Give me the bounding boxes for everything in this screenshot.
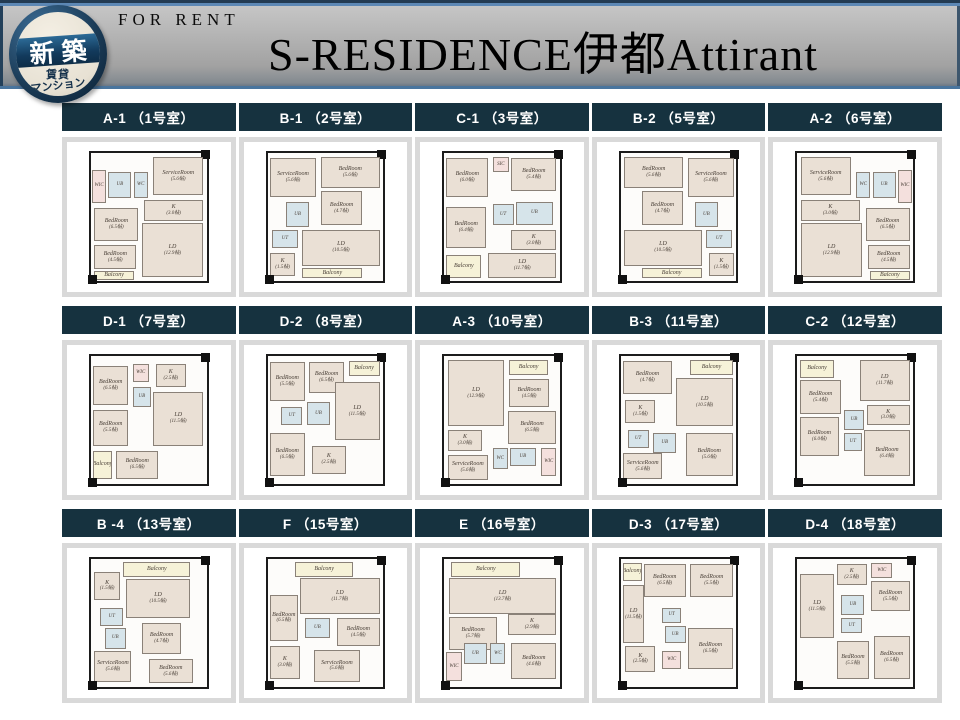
- floorplan-frame: BalconyLD(13.7帖)BedRoom(5.7帖)K(2.9帖)WICU…: [415, 543, 589, 703]
- room-name: WIC: [544, 459, 553, 465]
- room-name: ServiceRoom: [810, 170, 842, 177]
- room-size: (10.5帖): [149, 599, 166, 605]
- room-bedroom: BedRoom(6.5帖): [116, 451, 158, 479]
- room-name: Balcony: [354, 365, 374, 372]
- room-size: (4.7帖): [640, 378, 655, 384]
- room-ub: UB: [105, 628, 126, 648]
- room-name: WIC: [94, 183, 103, 189]
- floorplan-paper: BedRoom(4.7帖)BalconyLD(10.5帖)K(1.5帖)UTUB…: [597, 345, 761, 495]
- room-name: K: [463, 434, 467, 441]
- unit-cell: C-1 （3号室）BedRoom(6.0帖)SICBedRoom(5.4帖)UT…: [415, 103, 589, 297]
- unit-label: D-3 （17号室）: [592, 509, 766, 537]
- room-size: (4.5帖): [522, 394, 537, 400]
- room-bedroom: BedRoom(6.5帖): [866, 208, 910, 241]
- room-size: (6.4帖): [880, 454, 895, 460]
- floorplan-canvas: K(2.5帖)WICLD(11.5帖)BedRoom(5.5帖)UBUTBedR…: [795, 557, 915, 689]
- room-name: K: [169, 369, 173, 376]
- room-ld: LD(10.5帖): [126, 579, 191, 617]
- room-ut: UT: [281, 407, 302, 425]
- room-name: BedRoom: [877, 251, 900, 258]
- room-name: Balcony: [147, 566, 167, 573]
- room-name: K: [638, 405, 642, 412]
- room-name: K: [719, 258, 723, 265]
- room-k: K(1.5帖): [270, 253, 295, 276]
- room-name: ServiceRoom: [277, 171, 309, 178]
- room-name: UB: [661, 440, 668, 446]
- unit-label: E （16号室）: [415, 509, 589, 537]
- room-k: K(3.0帖): [448, 430, 483, 450]
- room-size: (1.5帖): [100, 586, 115, 592]
- room-bedroom: BedRoom(6.5帖): [94, 208, 138, 241]
- room-name: UB: [519, 454, 526, 460]
- floorplan-canvas: BedRoom(6.5帖)WICUBK(2.5帖)LD(11.5帖)BedRoo…: [89, 354, 209, 486]
- floorplan-canvas: BalconyLD(13.7帖)BedRoom(5.7帖)K(2.9帖)WICU…: [442, 557, 562, 689]
- room-wic: WIC: [133, 364, 149, 382]
- room-name: WC: [860, 182, 868, 188]
- room-ub: UB: [653, 433, 676, 453]
- floorplan-frame: BedRoom(6.5帖)WICUBK(2.5帖)LD(11.5帖)BedRoo…: [62, 340, 236, 500]
- room-ld: LD(11.7帖): [300, 578, 380, 614]
- room-name: K: [850, 568, 854, 575]
- room-name: UB: [531, 210, 538, 216]
- room-k: K(3.0帖): [270, 646, 300, 679]
- room-bedroom: BedRoom(5.4帖): [511, 158, 556, 191]
- room-ut: UT: [272, 230, 297, 248]
- room-name: WIC: [667, 657, 676, 663]
- room-bedroom: BedRoom(6.4帖): [864, 430, 909, 476]
- room-name: BedRoom: [642, 166, 665, 173]
- unit-label: A-3 （10号室）: [415, 306, 589, 334]
- room-name: BedRoom: [517, 387, 540, 394]
- room-size: (12.9帖): [467, 394, 484, 400]
- floorplan-paper: BedRoom(5.5帖)BedRoom(6.5帖)BalconyLD(11.5…: [244, 345, 408, 495]
- room-ld: LD(13.7帖): [449, 578, 557, 614]
- unit-cell: C-2 （12号室）BalconyLD(11.7帖)BedRoom(5.4帖)K…: [768, 306, 942, 500]
- room-name: ServiceRoom: [162, 170, 194, 177]
- room-size: (5.6帖): [163, 672, 178, 678]
- floorplan-paper: BalconyBedRoom(6.5帖)BedRoom(5.5帖)LD(11.5…: [597, 548, 761, 698]
- room-size: (5.6帖): [704, 178, 719, 184]
- room-size: (6.5帖): [657, 581, 672, 587]
- room-ub: UB: [510, 448, 535, 466]
- room-size: (5.4帖): [526, 175, 541, 181]
- room-size: (6.5帖): [525, 428, 540, 434]
- room-name: BedRoom: [347, 626, 370, 633]
- floorplan-frame: BedRoom(4.7帖)BalconyLD(10.5帖)K(1.5帖)UTUB…: [592, 340, 766, 500]
- room-name: UT: [109, 614, 115, 620]
- room-name: K: [530, 618, 534, 625]
- unit-cell: B-3 （11号室）BedRoom(4.7帖)BalconyLD(10.5帖)K…: [592, 306, 766, 500]
- room-balcony: Balcony: [94, 271, 133, 280]
- room-size: (2.5帖): [633, 659, 648, 665]
- room-name: UT: [668, 612, 674, 618]
- room-name: ServiceRoom: [627, 460, 659, 467]
- room-name: BedRoom: [461, 627, 484, 634]
- room-name: WIC: [136, 370, 145, 376]
- unit-cell: B -4 （13号室）BalconyK(1.5帖)LD(10.5帖)UTUBBe…: [62, 509, 236, 703]
- room-bedroom: BedRoom(4.5帖): [337, 618, 380, 646]
- room-name: Balcony: [104, 272, 124, 279]
- unit-label: B -4 （13号室）: [62, 509, 236, 537]
- room-bedroom: BedRoom(6.5帖): [270, 433, 305, 477]
- room-balcony: Balcony: [623, 563, 641, 581]
- room-k: K(2.5帖): [312, 446, 347, 474]
- room-bedroom: BedRoom(4.7帖): [642, 191, 684, 224]
- room-size: (13.7帖): [494, 597, 511, 603]
- room-name: UB: [850, 602, 857, 608]
- room-bedroom: BedRoom(4.5帖): [509, 379, 549, 407]
- room-size: (5.6帖): [330, 666, 345, 672]
- room-ub: UB: [844, 410, 865, 430]
- room-bedroom: BedRoom(6.5帖): [688, 628, 733, 669]
- unit-cell: B-2 （5号室）BedRoom(5.6帖)ServiceRoom(5.6帖)B…: [592, 103, 766, 297]
- room-size: (6.5帖): [880, 225, 895, 231]
- page-title: S-RESIDENCE伊都Attirant: [130, 18, 956, 84]
- room-size: (1.5帖): [714, 265, 729, 271]
- floorplan-paper: BalconyLD(11.7帖)BedRoom(5.4帖)K(3.0帖)UBUT…: [773, 345, 937, 495]
- header: FOR RENT S-RESIDENCE伊都Attirant 新築 賃貸 マンシ…: [0, 0, 960, 96]
- room-name: Balcony: [807, 365, 827, 372]
- floorplan-canvas: ServiceRoom(5.6帖)BedRoom(5.6帖)BedRoom(4.…: [266, 151, 386, 283]
- room-ld: LD(12.9帖): [448, 360, 505, 427]
- unit-cell: E （16号室）BalconyLD(13.7帖)BedRoom(5.7帖)K(2…: [415, 509, 589, 703]
- floorplan-frame: LD(12.9帖)BalconyBedRoom(4.5帖)BedRoom(6.5…: [415, 340, 589, 500]
- room-name: UT: [849, 623, 855, 629]
- room-wic: WIC: [92, 170, 106, 203]
- room-size: (5.6帖): [818, 177, 833, 183]
- room-ub: UB: [307, 402, 330, 425]
- room-bedroom: BedRoom(5.5帖): [93, 410, 128, 446]
- room-size: (6.5帖): [319, 378, 334, 384]
- room-size: (5.5帖): [704, 581, 719, 587]
- unit-label: A-1 （1号室）: [62, 103, 236, 131]
- room-name: BedRoom: [875, 447, 898, 454]
- floorplan-frame: BalconyLD(11.7帖)BedRoom(5.4帖)K(3.0帖)UBUT…: [768, 340, 942, 500]
- floorplan-paper: BedRoom(6.5帖)WICUBK(2.5帖)LD(11.5帖)BedRoo…: [67, 345, 231, 495]
- floorplan-canvas: BedRoom(6.0帖)SICBedRoom(5.4帖)UTUBBedRoom…: [442, 151, 562, 283]
- room-name: UT: [282, 236, 288, 242]
- room-size: (10.5帖): [696, 403, 713, 409]
- room-name: ServiceRoom: [695, 171, 727, 178]
- room-size: (2.5帖): [844, 575, 859, 581]
- room-ut: UT: [706, 230, 731, 248]
- room-name: Balcony: [314, 566, 334, 573]
- room-size: (11.5帖): [809, 607, 826, 613]
- room-ub: UB: [695, 202, 718, 228]
- room-serviceroom: ServiceRoom(5.6帖): [448, 455, 488, 481]
- room-name: UT: [289, 413, 295, 419]
- room-size: (3.0帖): [881, 415, 896, 421]
- room-serviceroom: ServiceRoom(5.6帖): [688, 158, 734, 196]
- room-name: UT: [716, 236, 722, 242]
- room-sic: SIC: [493, 157, 509, 172]
- room-bedroom: BedRoom(5.5帖): [270, 362, 305, 400]
- room-ub: UB: [108, 172, 131, 198]
- room-ld: LD(12.9帖): [142, 223, 203, 277]
- room-bedroom: BedRoom(5.6帖): [321, 157, 380, 188]
- room-name: UB: [851, 417, 858, 423]
- room-size: (12.9帖): [823, 251, 840, 257]
- floorplan-paper: BedRoom(6.0帖)SICBedRoom(5.4帖)UTUBBedRoom…: [420, 142, 584, 292]
- room-size: (3.0帖): [458, 441, 473, 447]
- room-name: UT: [850, 439, 856, 445]
- room-name: UB: [703, 212, 710, 218]
- room-ut: UT: [493, 204, 514, 224]
- unit-label: D-2 （8号室）: [239, 306, 413, 334]
- unit-label: B-3 （11号室）: [592, 306, 766, 334]
- unit-label: B-2 （5号室）: [592, 103, 766, 131]
- room-bedroom: BedRoom(4.7帖): [623, 361, 672, 394]
- floorplan-paper: ServiceRoom(5.6帖)WICUBWCBedRoom(6.5帖)K(3…: [773, 142, 937, 292]
- room-name: BedRoom: [456, 171, 479, 178]
- unit-label: A-2 （6号室）: [768, 103, 942, 131]
- room-size: (5.6帖): [343, 173, 358, 179]
- unit-cell: A-3 （10号室）LD(12.9帖)BalconyBedRoom(4.5帖)B…: [415, 306, 589, 500]
- room-wic: WIC: [898, 170, 912, 203]
- room-balcony: Balcony: [870, 271, 909, 280]
- room-name: BedRoom: [330, 202, 353, 209]
- floorplan-canvas: BedRoom(5.5帖)BedRoom(6.5帖)BalconyLD(11.5…: [266, 354, 386, 486]
- floorplan-canvas: BalconyLD(11.7帖)BedRoom(5.4帖)K(3.0帖)UBUT…: [795, 354, 915, 486]
- room-name: UB: [314, 625, 321, 631]
- room-k: K(2.5帖): [156, 364, 186, 387]
- room-ub: UB: [464, 643, 487, 663]
- room-name: BedRoom: [651, 202, 674, 209]
- room-balcony: Balcony: [509, 360, 548, 375]
- floorplan-frame: BalconyK(1.5帖)LD(10.5帖)UTUBBedRoom(4.7帖)…: [62, 543, 236, 703]
- room-size: (4.7帖): [655, 209, 670, 215]
- room-bedroom: BedRoom(4.7帖): [321, 191, 363, 224]
- unit-label: D-1 （7号室）: [62, 306, 236, 334]
- room-bedroom: BedRoom(4.5帖): [94, 245, 136, 269]
- room-ld: LD(11.5帖): [335, 382, 380, 441]
- floorplan-frame: BalconyLD(11.7帖)BedRoom(6.5帖)UBBedRoom(4…: [239, 543, 413, 703]
- unit-cell: F （15号室）BalconyLD(11.7帖)BedRoom(6.5帖)UBB…: [239, 509, 413, 703]
- room-k: K(1.5帖): [94, 572, 119, 600]
- room-bedroom: BedRoom(6.0帖): [800, 417, 839, 455]
- room-name: WC: [494, 651, 502, 657]
- unit-cell: D-4 （18号室）K(2.5帖)WICLD(11.5帖)BedRoom(5.5…: [768, 509, 942, 703]
- room-name: BedRoom: [104, 251, 127, 258]
- room-size: (6.5帖): [703, 649, 718, 655]
- room-name: WC: [137, 182, 145, 188]
- room-wc: WC: [493, 448, 508, 468]
- room-size: (6.5帖): [280, 455, 295, 461]
- room-serviceroom: ServiceRoom(5.6帖): [153, 157, 203, 195]
- floorplan-canvas: LD(12.9帖)BalconyBedRoom(4.5帖)BedRoom(6.5…: [442, 354, 562, 486]
- room-wic: WIC: [662, 651, 680, 669]
- room-size: (4.7帖): [154, 639, 169, 645]
- unit-label: C-1 （3号室）: [415, 103, 589, 131]
- room-name: Balcony: [880, 272, 900, 279]
- room-k: K(3.0帖): [511, 230, 556, 250]
- room-balcony: Balcony: [349, 361, 380, 376]
- room-size: (6.5帖): [109, 225, 124, 231]
- room-name: BedRoom: [841, 654, 864, 661]
- room-bedroom: BedRoom(6.5帖): [270, 595, 298, 641]
- unit-cell: B-1 （2号室）ServiceRoom(5.6帖)BedRoom(5.6帖)B…: [239, 103, 413, 297]
- room-size: (5.6帖): [171, 177, 186, 183]
- room-ld: LD(12.9帖): [801, 223, 862, 277]
- room-k: K(3.0帖): [867, 405, 910, 425]
- room-ld: LD(10.5帖): [624, 230, 701, 266]
- room-wc: WC: [134, 172, 148, 198]
- room-size: (6.4帖): [459, 228, 474, 234]
- room-name: BedRoom: [339, 166, 362, 173]
- unit-cell: A-1 （1号室）ServiceRoom(5.6帖)WICUBWCBedRoom…: [62, 103, 236, 297]
- room-name: ServiceRoom: [452, 461, 484, 468]
- room-name: WIC: [900, 183, 909, 189]
- room-name: Balcony: [93, 461, 111, 468]
- room-bedroom: BedRoom(4.6帖): [511, 643, 556, 679]
- floorplan-paper: BalconyLD(11.7帖)BedRoom(6.5帖)UBBedRoom(4…: [244, 548, 408, 698]
- unit-label: C-2 （12号室）: [768, 306, 942, 334]
- room-bedroom: BedRoom(6.5帖): [508, 411, 557, 444]
- room-size: (6.5帖): [103, 386, 118, 392]
- floorplan-canvas: BalconyK(1.5帖)LD(10.5帖)UTUBBedRoom(4.7帖)…: [89, 557, 209, 689]
- room-k: K(2.5帖): [837, 564, 867, 584]
- room-name: LD: [336, 590, 344, 597]
- room-serviceroom: ServiceRoom(5.6帖): [801, 157, 851, 195]
- room-balcony: Balcony: [690, 360, 733, 375]
- room-name: UB: [315, 411, 322, 417]
- room-size: (2.9帖): [525, 625, 540, 631]
- floorplan-paper: LD(12.9帖)BalconyBedRoom(4.5帖)BedRoom(6.5…: [420, 345, 584, 495]
- room-name: UB: [139, 394, 146, 400]
- floorplan-canvas: ServiceRoom(5.6帖)WICUBWCBedRoom(6.5帖)K(3…: [795, 151, 915, 283]
- room-name: WC: [496, 456, 504, 462]
- room-name: UB: [112, 635, 119, 641]
- room-wc: WC: [490, 643, 505, 663]
- room-name: BedRoom: [150, 632, 173, 639]
- room-ut: UT: [844, 433, 862, 451]
- room-ld: LD(11.5帖): [153, 392, 203, 446]
- badge-inner-circle: 新築 賃貸 マンション: [16, 12, 100, 96]
- new-construction-badge: 新築 賃貸 マンション: [9, 5, 107, 103]
- room-k: K(2.9帖): [508, 614, 557, 634]
- room-balcony: Balcony: [302, 268, 362, 278]
- unit-cell: D-3 （17号室）BalconyBedRoom(6.5帖)BedRoom(5.…: [592, 509, 766, 703]
- floorplan-frame: ServiceRoom(5.6帖)BedRoom(5.6帖)BedRoom(4.…: [239, 137, 413, 297]
- room-name: LD: [701, 396, 709, 403]
- unit-cell: A-2 （6号室）ServiceRoom(5.6帖)WICUBWCBedRoom…: [768, 103, 942, 297]
- room-ut: UT: [662, 608, 680, 623]
- floorplan-paper: K(2.5帖)WICLD(11.5帖)BedRoom(5.5帖)UBUTBedR…: [773, 548, 937, 698]
- room-bedroom: BedRoom(6.0帖): [446, 158, 488, 196]
- room-size: (5.6帖): [461, 468, 476, 474]
- room-size: (6.5帖): [130, 465, 145, 471]
- room-name: UB: [672, 632, 679, 638]
- room-ub: UB: [665, 626, 686, 644]
- room-size: (5.6帖): [286, 178, 301, 184]
- room-size: (5.6帖): [702, 455, 717, 461]
- room-ub: UB: [516, 202, 553, 225]
- room-ld: LD(11.5帖): [800, 574, 835, 638]
- header-bottom-line: [0, 86, 960, 89]
- room-size: (5.7帖): [466, 634, 481, 640]
- room-name: UT: [500, 212, 506, 218]
- room-wic: WIC: [446, 652, 461, 680]
- room-ub: UB: [133, 387, 151, 407]
- room-name: Balcony: [623, 568, 641, 575]
- room-name: LD: [813, 600, 821, 607]
- room-balcony: Balcony: [123, 562, 190, 577]
- floorplan-frame: BedRoom(6.0帖)SICBedRoom(5.4帖)UTUBBedRoom…: [415, 137, 589, 297]
- room-name: UB: [472, 651, 479, 657]
- room-ub: UB: [873, 172, 896, 198]
- room-wic: WIC: [871, 563, 892, 578]
- room-name: BedRoom: [879, 590, 902, 597]
- unit-label: B-1 （2号室）: [239, 103, 413, 131]
- room-name: SIC: [497, 162, 505, 168]
- room-ld: LD(11.7帖): [860, 360, 910, 401]
- room-size: (5.5帖): [103, 428, 118, 434]
- room-bedroom: BedRoom(4.5帖): [868, 245, 910, 269]
- room-wc: WC: [856, 172, 870, 198]
- room-name: Balcony: [519, 364, 539, 371]
- unit-cell: D-2 （8号室）BedRoom(5.5帖)BedRoom(6.5帖)Balco…: [239, 306, 413, 500]
- room-name: UB: [294, 212, 301, 218]
- room-name: WIC: [877, 568, 886, 574]
- badge-band: 新築: [16, 33, 100, 70]
- room-name: Balcony: [662, 270, 682, 277]
- room-size: (3.0帖): [526, 241, 541, 247]
- room-bedroom: BedRoom(5.6帖): [624, 157, 683, 188]
- floorplan-paper: BedRoom(5.6帖)ServiceRoom(5.6帖)BedRoom(4.…: [597, 142, 761, 292]
- room-name: UB: [881, 182, 888, 188]
- room-ut: UT: [100, 608, 123, 626]
- floorplan-canvas: BalconyLD(11.7帖)BedRoom(6.5帖)UBBedRoom(4…: [266, 557, 386, 689]
- room-k: K(2.5帖): [625, 646, 655, 672]
- floorplan-frame: BedRoom(5.6帖)ServiceRoom(5.6帖)BedRoom(4.…: [592, 137, 766, 297]
- room-balcony: Balcony: [642, 268, 702, 278]
- room-name: LD: [828, 244, 836, 251]
- room-ub: UB: [305, 618, 330, 638]
- room-size: (5.6帖): [635, 467, 650, 473]
- unit-cell: D-1 （7号室）BedRoom(6.5帖)WICUBK(2.5帖)LD(11.…: [62, 306, 236, 500]
- unit-label: D-4 （18号室）: [768, 509, 942, 537]
- room-size: (11.7帖): [514, 266, 531, 272]
- room-ld: LD(11.5帖): [623, 585, 644, 644]
- floorplan-canvas: ServiceRoom(5.6帖)WICUBWCBedRoom(6.5帖)K(3…: [89, 151, 209, 283]
- floorplan-canvas: BalconyBedRoom(6.5帖)BedRoom(5.5帖)LD(11.5…: [619, 557, 739, 689]
- room-name: UB: [117, 182, 124, 188]
- room-ld: LD(11.7帖): [488, 253, 556, 279]
- room-name: BedRoom: [522, 655, 545, 662]
- room-name: Balcony: [702, 364, 722, 371]
- room-name: BedRoom: [99, 379, 122, 386]
- room-name: WIC: [449, 664, 458, 670]
- room-size: (5.4帖): [813, 398, 828, 404]
- room-serviceroom: ServiceRoom(5.6帖): [94, 651, 131, 682]
- room-name: K: [281, 258, 285, 265]
- room-balcony: Balcony: [93, 451, 111, 479]
- room-name: LD: [630, 608, 638, 615]
- floorplan-frame: ServiceRoom(5.6帖)WICUBWCBedRoom(6.5帖)K(3…: [62, 137, 236, 297]
- room-wic: WIC: [541, 448, 556, 476]
- room-size: (11.7帖): [876, 381, 893, 387]
- room-serviceroom: ServiceRoom(5.6帖): [314, 650, 360, 682]
- room-name: LD: [499, 590, 507, 597]
- room-ld: LD(10.5帖): [302, 230, 379, 266]
- room-bedroom: BedRoom(5.5帖): [871, 581, 909, 612]
- room-balcony: Balcony: [800, 360, 835, 378]
- floorplan-frame: K(2.5帖)WICLD(11.5帖)BedRoom(5.5帖)UBUTBedR…: [768, 543, 942, 703]
- room-name: LD: [472, 387, 480, 394]
- room-k: K(3.0帖): [144, 200, 203, 220]
- floorplan-paper: BalconyK(1.5帖)LD(10.5帖)UTUBBedRoom(4.7帖)…: [67, 548, 231, 698]
- room-size: (6.5帖): [884, 658, 899, 664]
